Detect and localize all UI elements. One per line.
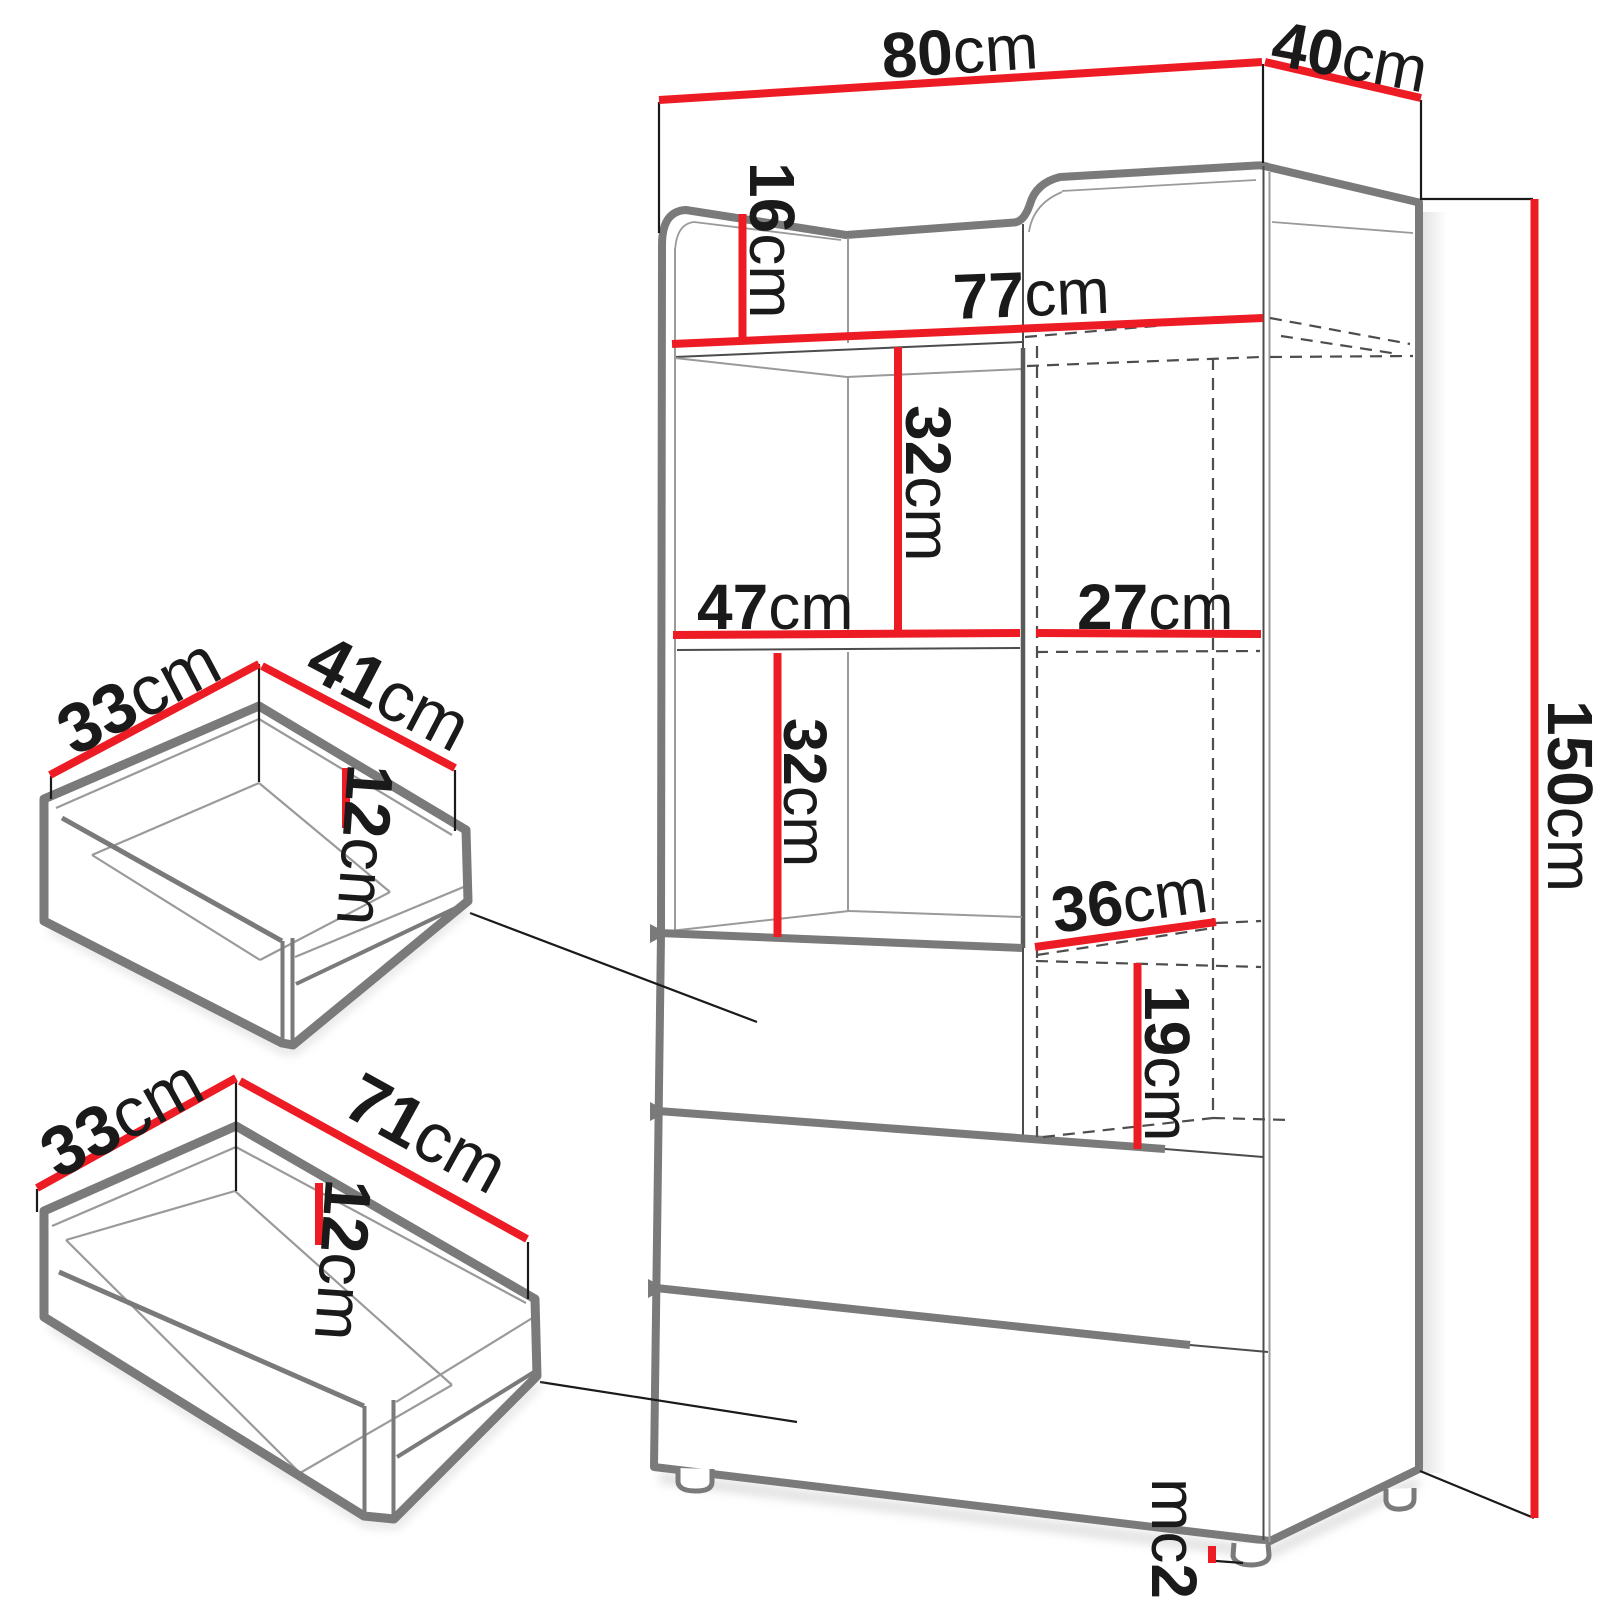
svg-text:32cm: 32cm — [771, 718, 839, 867]
svg-text:80cm: 80cm — [879, 10, 1040, 92]
svg-text:12cm: 12cm — [301, 1177, 386, 1343]
svg-text:77cm: 77cm — [952, 255, 1111, 333]
svg-text:150cm: 150cm — [1534, 700, 1600, 892]
svg-text:19cm: 19cm — [1131, 985, 1203, 1142]
svg-text:27cm: 27cm — [1077, 571, 1234, 643]
svg-text:mc2: mc2 — [1138, 1478, 1210, 1599]
svg-text:32cm: 32cm — [892, 405, 964, 562]
svg-text:16cm: 16cm — [736, 162, 808, 319]
svg-text:47cm: 47cm — [697, 571, 854, 643]
svg-text:12cm: 12cm — [323, 762, 408, 928]
